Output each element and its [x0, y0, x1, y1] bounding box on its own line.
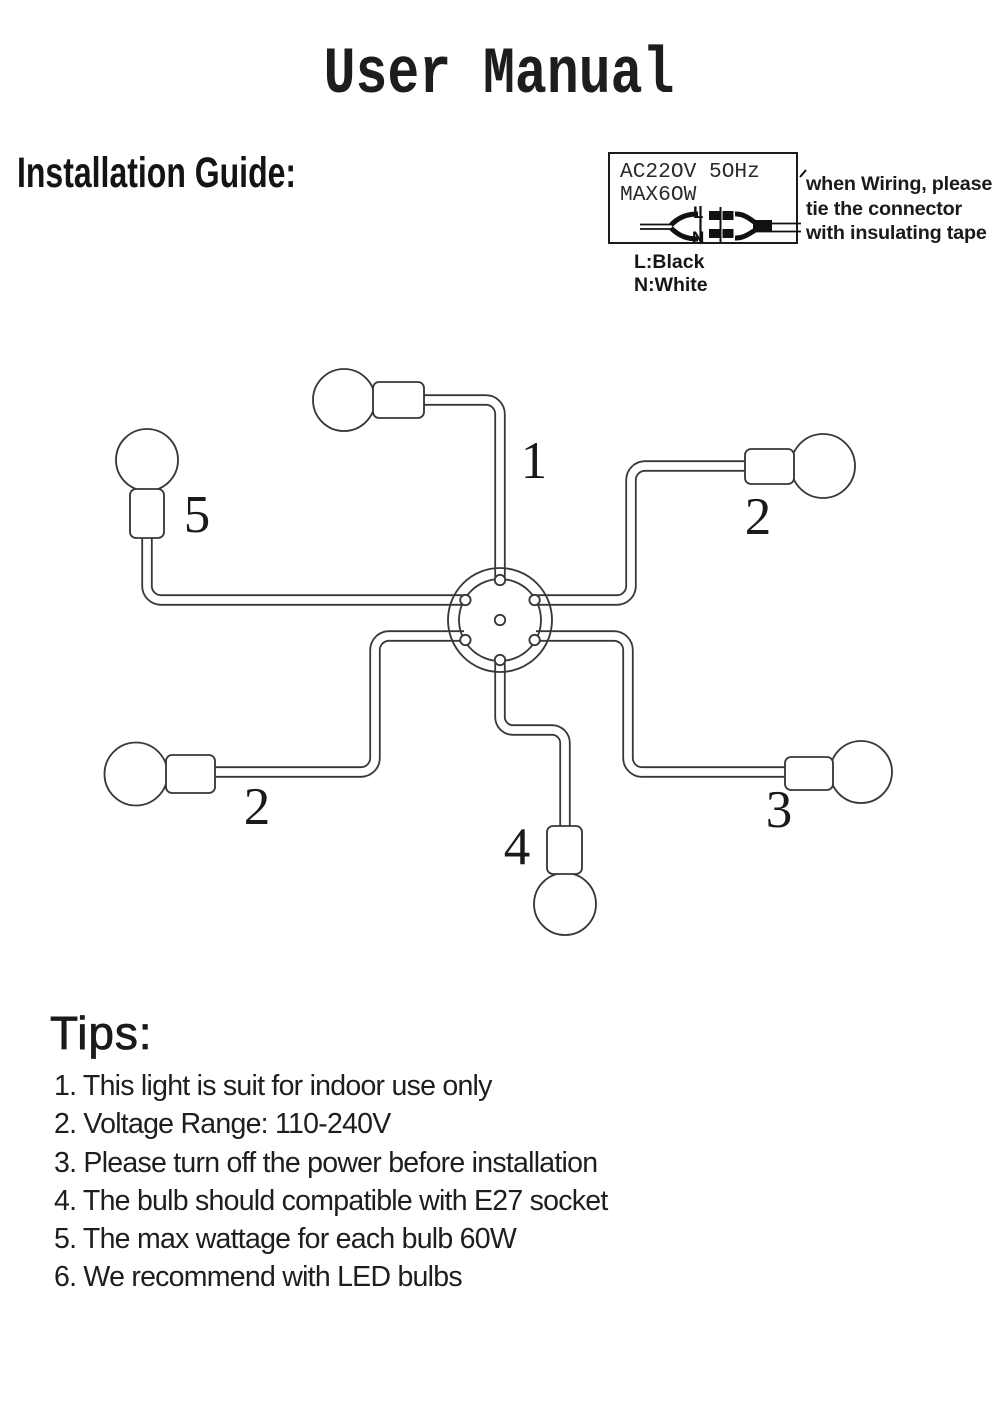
svg-text:3: 3 [766, 781, 793, 839]
svg-text:2: 2 [244, 778, 271, 836]
svg-text:L: L [693, 203, 703, 222]
svg-text:4: 4 [504, 818, 531, 876]
svg-text:5: 5 [184, 486, 211, 544]
svg-text:2: 2 [745, 488, 772, 546]
svg-text:N: N [692, 228, 704, 247]
svg-text:1: 1 [521, 432, 548, 490]
